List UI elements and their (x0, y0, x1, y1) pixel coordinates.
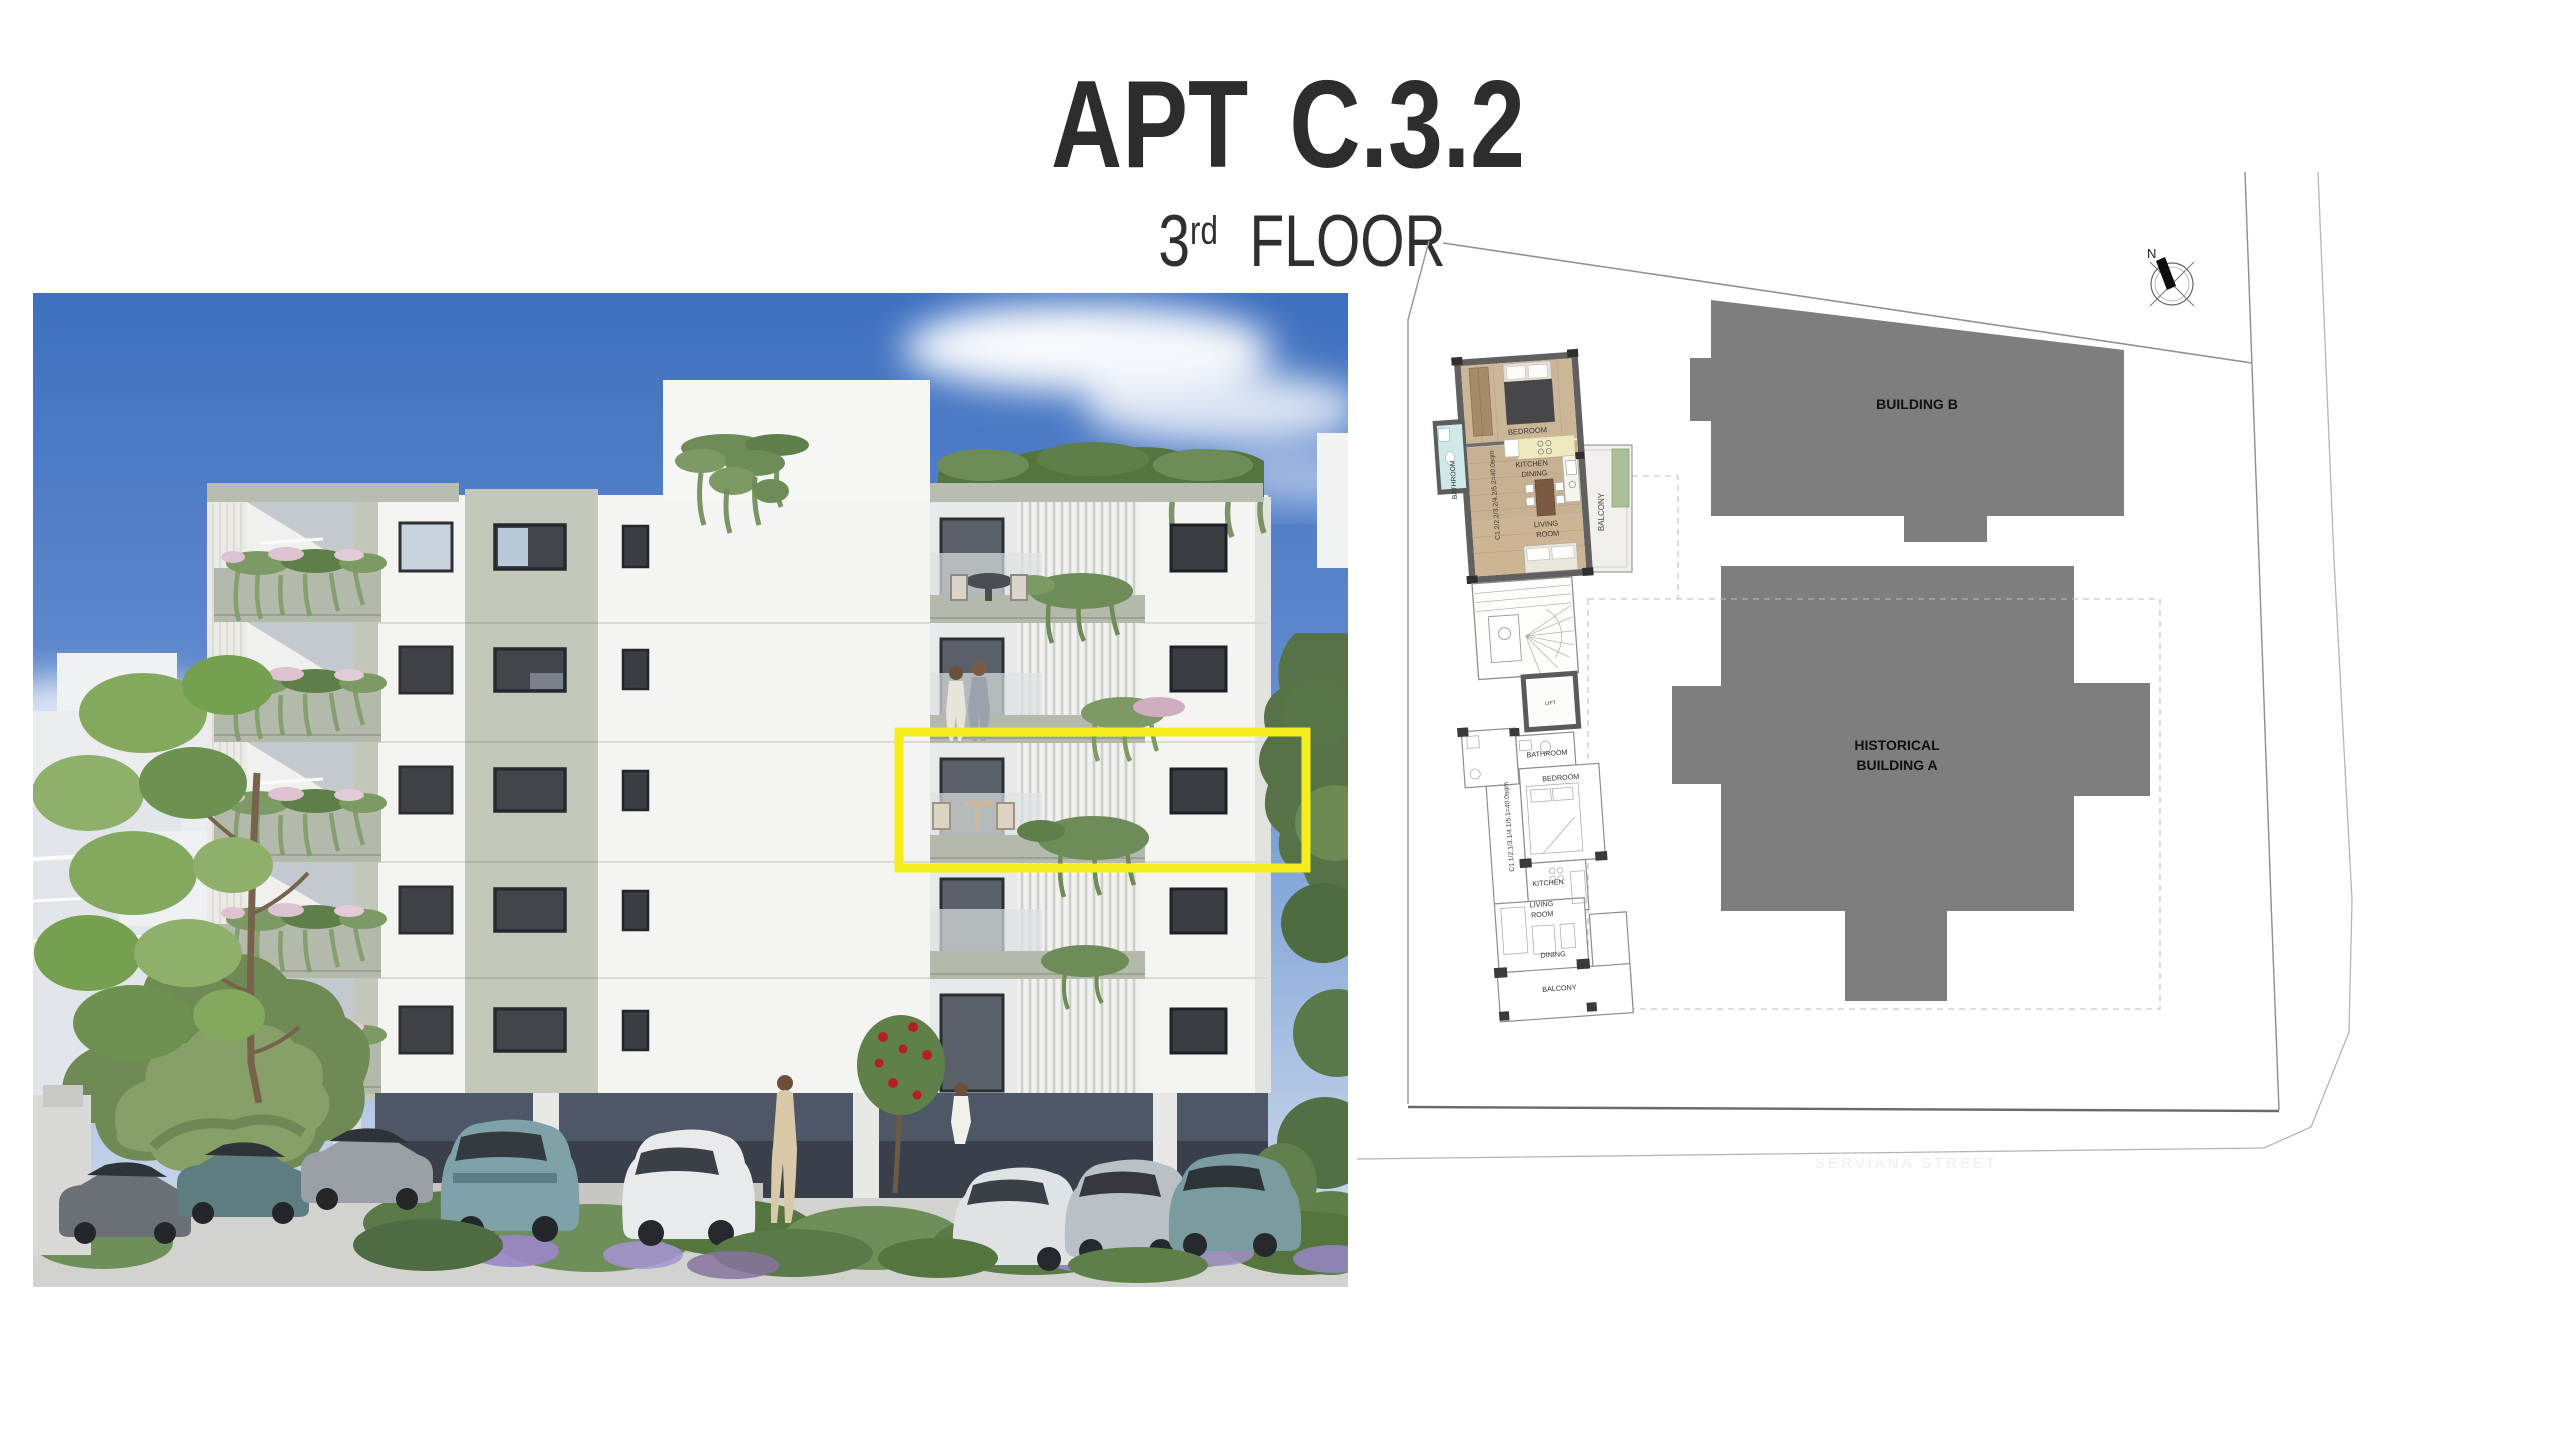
svg-text:LIFT: LIFT (1545, 700, 1557, 707)
svg-text:BUILDING A: BUILDING A (1856, 757, 1937, 773)
svg-text:ROOM: ROOM (1531, 909, 1554, 920)
svg-text:DINING: DINING (1521, 468, 1548, 479)
svg-text:N: N (2147, 246, 2156, 261)
svg-text:BUILDING B: BUILDING B (1876, 396, 1958, 412)
svg-text:ROOM: ROOM (1536, 529, 1560, 540)
svg-text:LIVING: LIVING (1529, 899, 1554, 910)
svg-text:HISTORICAL: HISTORICAL (1854, 737, 1940, 753)
svg-text:DINING: DINING (1540, 949, 1566, 960)
svg-text:LIVING: LIVING (1534, 519, 1559, 530)
svg-text:SERVIANA STREET: SERVIANA STREET (1815, 1155, 1998, 1172)
svg-text:BALCONY: BALCONY (1597, 492, 1606, 531)
